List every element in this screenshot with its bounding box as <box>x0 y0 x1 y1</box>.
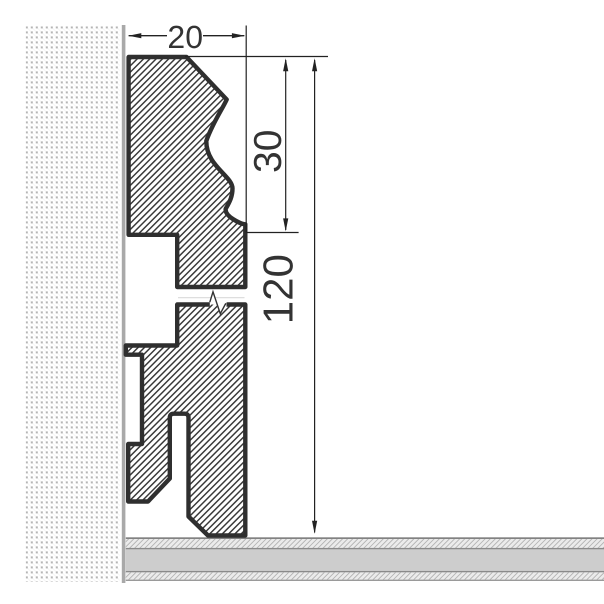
svg-text:20: 20 <box>167 19 203 55</box>
svg-text:30: 30 <box>247 130 290 173</box>
svg-text:120: 120 <box>255 254 302 324</box>
